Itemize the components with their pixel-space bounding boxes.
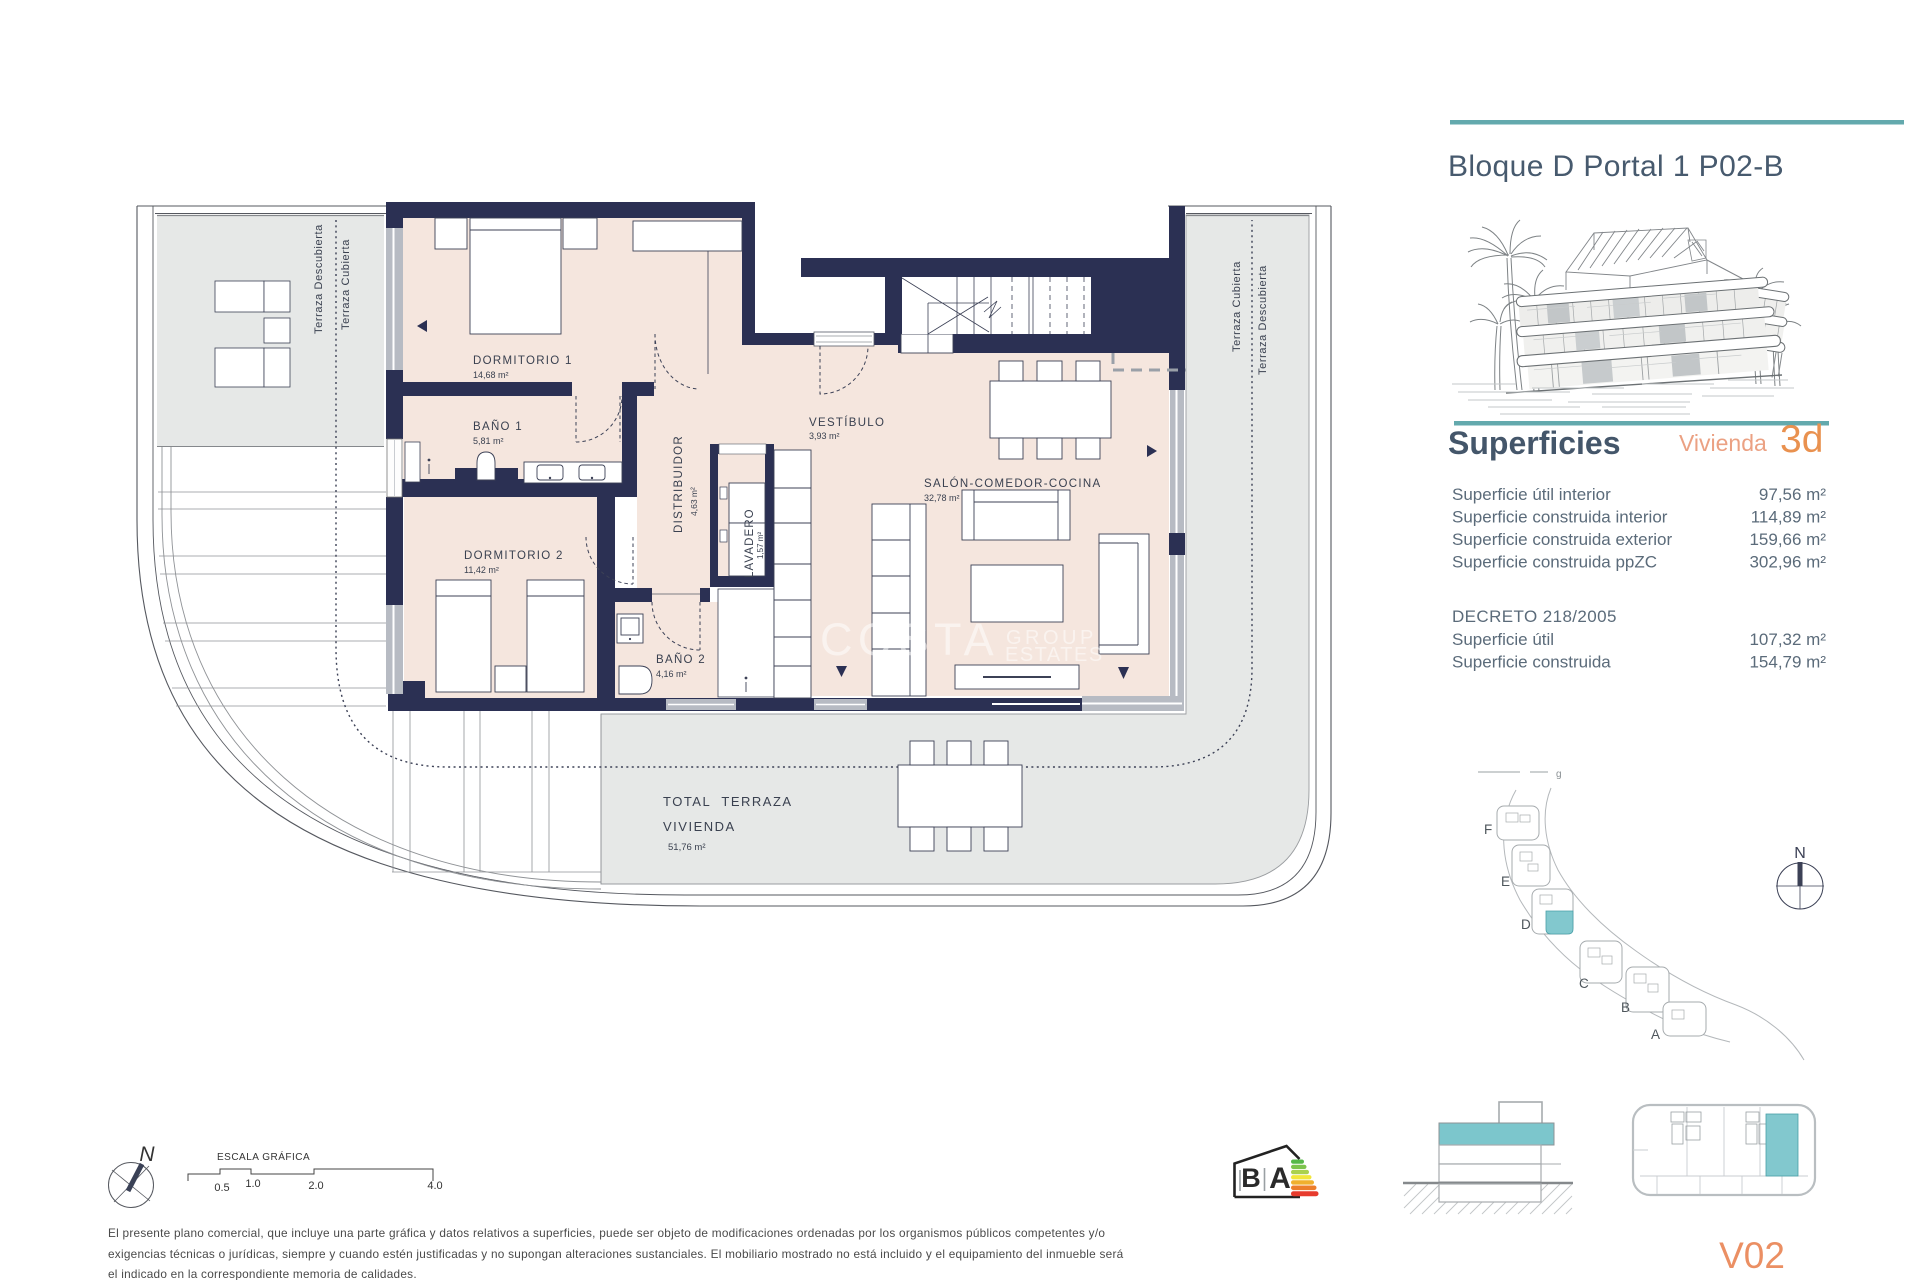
svg-text:N: N: [1794, 845, 1806, 862]
svg-text:0.5: 0.5: [214, 1182, 229, 1194]
svg-text:302,96 m²: 302,96 m²: [1749, 553, 1826, 572]
svg-text:Bloque D Portal 1 P02-B: Bloque D Portal 1 P02-B: [1448, 150, 1784, 183]
svg-text:Superficie construida interior: Superficie construida interior: [1452, 508, 1668, 527]
svg-text:Superficie útil: Superficie útil: [1452, 630, 1554, 649]
svg-text:DECRETO 218/2005: DECRETO 218/2005: [1452, 607, 1617, 626]
svg-text:32,78 m²: 32,78 m²: [924, 493, 960, 503]
svg-text:g: g: [1556, 769, 1562, 780]
svg-text:3,93 m²: 3,93 m²: [809, 431, 840, 441]
svg-text:3d: 3d: [1780, 418, 1823, 461]
svg-text:DORMITORIO 1: DORMITORIO 1: [473, 355, 573, 367]
svg-text:Terraza Cubierta: Terraza Cubierta: [340, 239, 352, 330]
svg-text:exigencias técnicas o jurídica: exigencias técnicas o jurídicas, siempre…: [108, 1247, 1124, 1261]
svg-text:97,56 m²: 97,56 m²: [1759, 485, 1826, 504]
svg-text:B: B: [1621, 1000, 1630, 1015]
svg-text:159,66 m²: 159,66 m²: [1749, 530, 1826, 549]
svg-text:11,42 m²: 11,42 m²: [464, 565, 499, 575]
svg-text:Superficie construida exterior: Superficie construida exterior: [1452, 530, 1673, 549]
svg-text:VESTÍBULO: VESTÍBULO: [809, 416, 885, 429]
svg-text:Terraza Descubierta: Terraza Descubierta: [313, 224, 325, 334]
svg-text:El presente plano comercial, q: El presente plano comercial, que incluye…: [108, 1226, 1105, 1240]
svg-text:E: E: [1501, 874, 1510, 889]
svg-text:A: A: [1651, 1027, 1660, 1042]
svg-text:DISTRIBUIDOR: DISTRIBUIDOR: [673, 435, 685, 533]
svg-text:Terraza Descubierta: Terraza Descubierta: [1257, 265, 1269, 375]
svg-text:Vivienda: Vivienda: [1679, 430, 1767, 456]
svg-text:LAVADERO: LAVADERO: [744, 508, 756, 578]
svg-text:A: A: [1269, 1162, 1291, 1195]
svg-text:Superficies: Superficies: [1448, 425, 1621, 461]
svg-text:Superficie útil interior: Superficie útil interior: [1452, 485, 1611, 504]
svg-text:TOTAL TERRAZA: TOTAL TERRAZA: [663, 794, 793, 809]
svg-text:C: C: [1579, 976, 1589, 991]
svg-text:114,89 m²: 114,89 m²: [1751, 508, 1827, 527]
svg-text:Terraza Cubierta: Terraza Cubierta: [1231, 261, 1243, 352]
svg-text:BAÑO 2: BAÑO 2: [656, 653, 706, 666]
svg-text:el indicado en la correspondie: el indicado en la correspondiente memori…: [108, 1267, 417, 1280]
svg-text:SALÓN-COMEDOR-COCINA: SALÓN-COMEDOR-COCINA: [924, 477, 1101, 490]
svg-text:COSTA: COSTA: [820, 614, 999, 665]
svg-text:154,79 m²: 154,79 m²: [1749, 653, 1826, 672]
svg-text:DORMITORIO 2: DORMITORIO 2: [464, 550, 564, 562]
svg-text:1.0: 1.0: [245, 1178, 260, 1190]
svg-text:5,81 m²: 5,81 m²: [473, 436, 504, 446]
svg-text:VIVIENDA: VIVIENDA: [663, 819, 736, 834]
svg-text:1,57 m²: 1,57 m²: [756, 532, 765, 559]
svg-text:B: B: [1241, 1163, 1261, 1193]
svg-text:14,68 m²: 14,68 m²: [473, 370, 509, 380]
svg-text:V02: V02: [1719, 1235, 1785, 1276]
svg-text:D: D: [1521, 917, 1531, 932]
svg-text:4,63 m²: 4,63 m²: [689, 487, 699, 516]
svg-text:2.0: 2.0: [308, 1180, 323, 1192]
svg-text:Superficie construida ppZC: Superficie construida ppZC: [1452, 553, 1657, 572]
svg-text:4.0: 4.0: [427, 1180, 442, 1192]
svg-text:51,76 m²: 51,76 m²: [668, 842, 706, 853]
svg-text:ESCALA GRÁFICA: ESCALA GRÁFICA: [217, 1150, 310, 1163]
svg-text:BAÑO 1: BAÑO 1: [473, 420, 523, 433]
svg-text:F: F: [1484, 822, 1492, 837]
svg-text:N: N: [139, 1143, 155, 1166]
svg-text:107,32 m²: 107,32 m²: [1749, 630, 1826, 649]
svg-text:4,16 m²: 4,16 m²: [656, 669, 687, 679]
svg-text:ESTATES: ESTATES: [1005, 644, 1104, 666]
svg-text:Superficie construida: Superficie construida: [1452, 653, 1611, 672]
